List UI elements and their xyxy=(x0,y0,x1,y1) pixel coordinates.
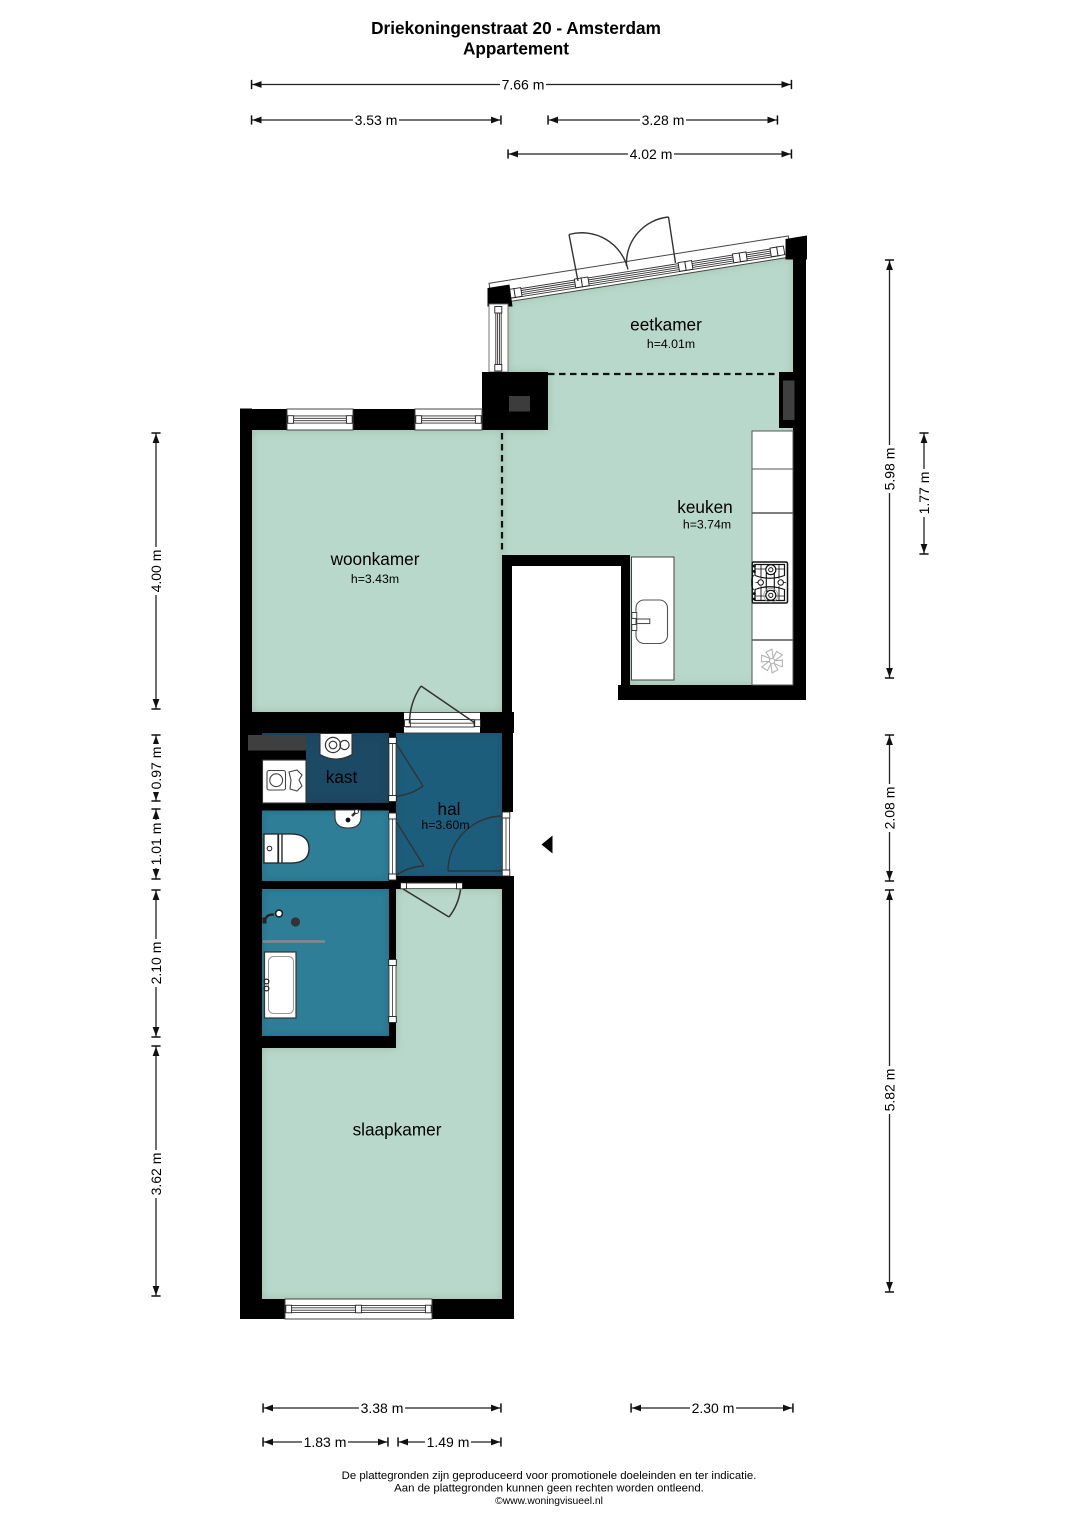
svg-text:©www.woningvisueel.nl: ©www.woningvisueel.nl xyxy=(495,1496,603,1507)
svg-text:eetkamer: eetkamer xyxy=(630,315,702,335)
svg-text:woonkamer: woonkamer xyxy=(330,549,420,569)
svg-text:Aan de plattegronden kunnen ge: Aan de plattegronden kunnen geen rechten… xyxy=(394,1483,704,1495)
svg-text:h=3.74m: h=3.74m xyxy=(683,518,731,532)
svg-text:3.28 m: 3.28 m xyxy=(642,112,685,128)
svg-text:slaapkamer: slaapkamer xyxy=(353,1120,442,1140)
svg-text:5.98 m: 5.98 m xyxy=(882,448,898,491)
svg-text:0.97 m: 0.97 m xyxy=(148,747,164,790)
svg-text:kast: kast xyxy=(326,767,358,787)
svg-text:Appartement: Appartement xyxy=(463,39,569,59)
svg-text:1.83 m: 1.83 m xyxy=(304,1434,347,1450)
svg-text:4.00 m: 4.00 m xyxy=(148,550,164,593)
svg-text:1.01 m: 1.01 m xyxy=(148,823,164,866)
svg-text:h=4.01m: h=4.01m xyxy=(647,337,695,351)
svg-text:5.82 m: 5.82 m xyxy=(882,1069,898,1112)
svg-text:keuken: keuken xyxy=(677,497,732,517)
svg-text:hal: hal xyxy=(438,799,461,819)
svg-text:Driekoningenstraat 20 - Amster: Driekoningenstraat 20 - Amsterdam xyxy=(371,18,661,38)
svg-text:h=3.60m: h=3.60m xyxy=(421,818,469,832)
svg-text:De plattegronden zijn geproduc: De plattegronden zijn geproduceerd voor … xyxy=(342,1470,757,1482)
svg-text:1.49 m: 1.49 m xyxy=(427,1434,470,1450)
svg-text:2.30 m: 2.30 m xyxy=(692,1400,735,1416)
svg-text:2.10 m: 2.10 m xyxy=(148,942,164,985)
svg-text:h=3.43m: h=3.43m xyxy=(351,572,399,586)
svg-text:2.08 m: 2.08 m xyxy=(882,787,898,830)
svg-text:1.77 m: 1.77 m xyxy=(916,472,932,515)
svg-text:3.62 m: 3.62 m xyxy=(148,1153,164,1196)
svg-text:3.38 m: 3.38 m xyxy=(361,1400,404,1416)
svg-text:4.02 m: 4.02 m xyxy=(630,146,673,162)
svg-text:3.53 m: 3.53 m xyxy=(355,112,398,128)
svg-text:7.66 m: 7.66 m xyxy=(502,77,545,93)
